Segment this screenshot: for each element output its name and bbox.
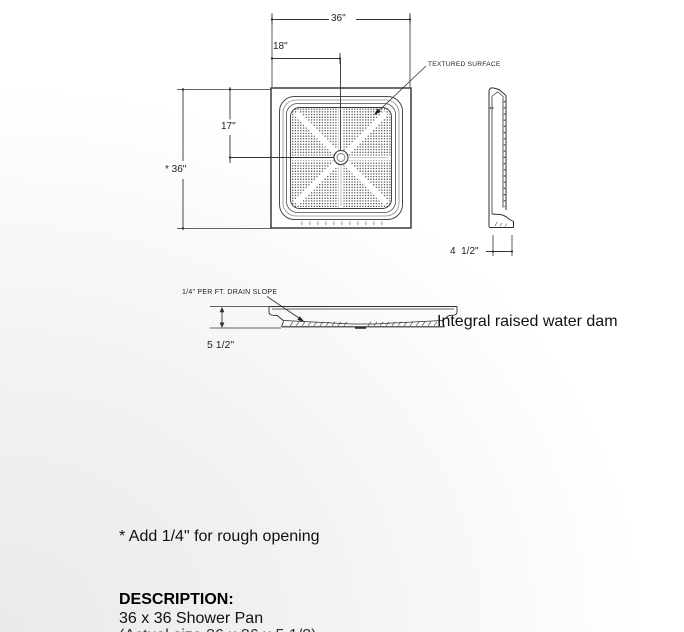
side-foot <box>492 214 514 222</box>
side-view-dimension <box>486 235 513 256</box>
dim-label-18: 18" <box>273 42 288 52</box>
dim-label-17: 17" <box>221 122 236 132</box>
water-dam-caption: Integral raised water dam <box>437 314 618 330</box>
description-clipped-line: (Actual size 36 x 36 x 5 1/2) <box>119 628 316 632</box>
top-view <box>230 59 411 228</box>
description-product: 36 x 36 Shower Pan <box>119 611 263 627</box>
basin-floor-top <box>284 321 442 325</box>
dim-label-36-left: * 36" <box>165 165 186 175</box>
section-view <box>269 307 457 329</box>
drain-inner <box>337 154 345 162</box>
side-view <box>489 88 514 228</box>
spec-sheet-page: 36" 18" 17" * 36" TEXTURED SURFACE 4 1/2… <box>0 0 684 632</box>
description-heading: DESCRIPTION: <box>119 592 234 608</box>
dim-label-4-1-2: 4 1/2" <box>450 247 479 257</box>
technical-drawing <box>0 0 684 470</box>
dim-label-5-1-2: 5 1/2" <box>207 340 234 351</box>
foot-hatch <box>495 222 507 227</box>
rough-opening-footnote: * Add 1/4" for rough opening <box>119 529 320 545</box>
textured-surface-label: TEXTURED SURFACE <box>428 62 501 69</box>
section-view-dimension <box>210 307 281 329</box>
dim-label-36: 36" <box>331 14 346 24</box>
drain-slope-label: 1/4" PER FT. DRAIN SLOPE <box>182 289 277 296</box>
drain-boss <box>355 327 366 329</box>
